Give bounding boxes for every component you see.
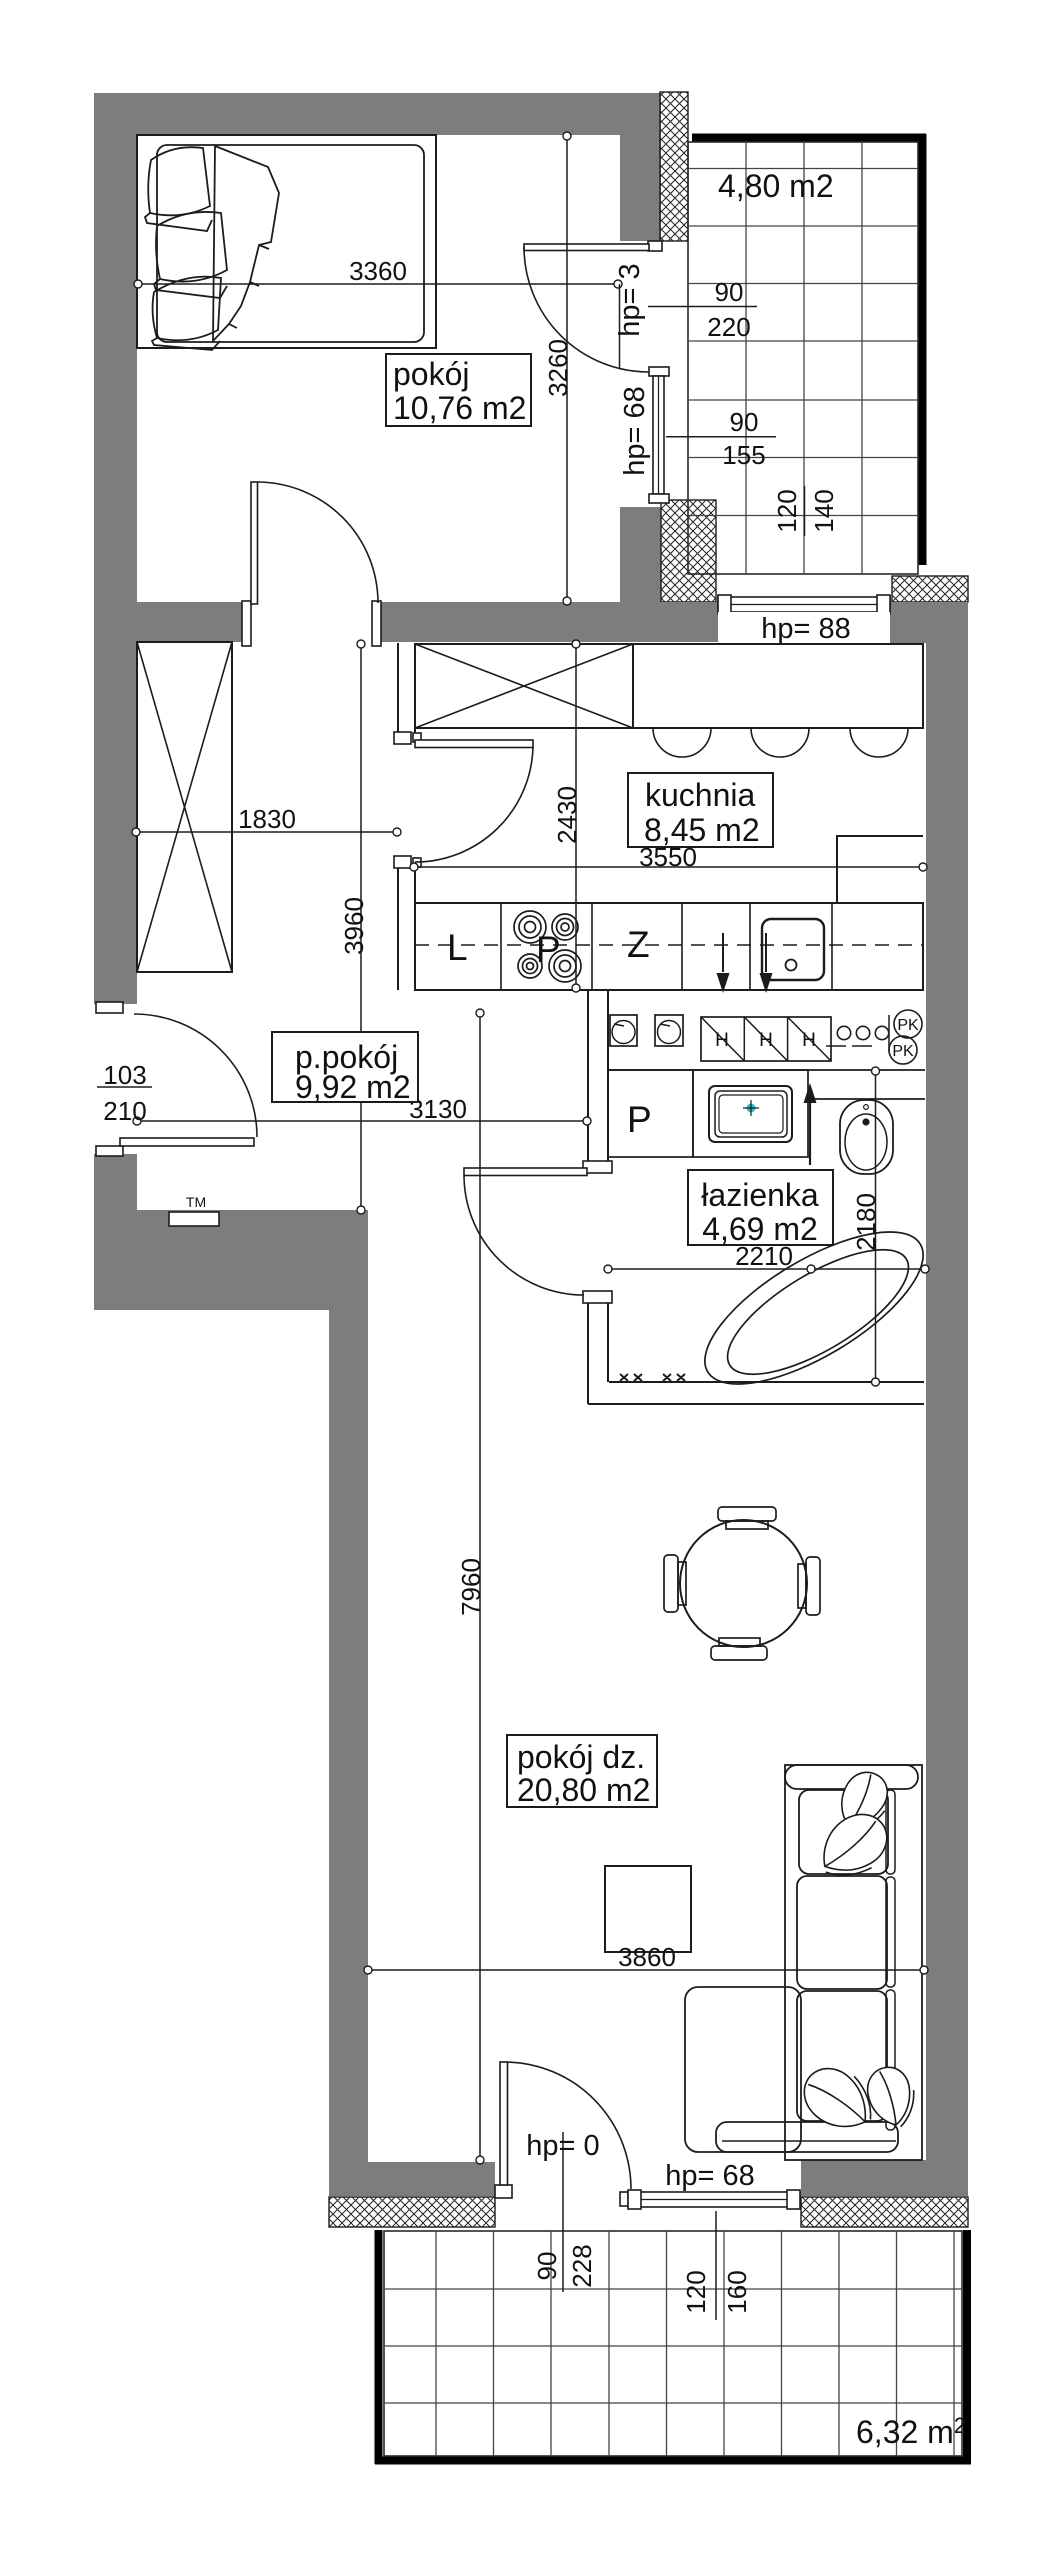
svg-text:20,80 m2: 20,80 m2 [517, 1772, 650, 1808]
svg-text:7960: 7960 [456, 1558, 486, 1616]
svg-text:220: 220 [707, 312, 750, 342]
svg-text:9,92 m2: 9,92 m2 [295, 1069, 411, 1105]
svg-text:210: 210 [103, 1096, 146, 1126]
svg-text:120: 120 [772, 489, 802, 532]
svg-text:228: 228 [567, 2244, 597, 2287]
svg-text:P: P [536, 929, 561, 970]
svg-text:3360: 3360 [349, 256, 407, 286]
svg-text:1830: 1830 [238, 804, 296, 834]
svg-text:pokój dz.: pokój dz. [517, 1739, 645, 1775]
svg-text:H: H [802, 1030, 816, 1051]
svg-text:łazienka: łazienka [701, 1177, 819, 1213]
svg-text:4,69 m2: 4,69 m2 [702, 1211, 818, 1247]
svg-text:3960: 3960 [339, 897, 369, 955]
svg-text:hp= 68: hp= 68 [665, 2160, 755, 2192]
svg-text:4,80 m2: 4,80 m2 [718, 168, 834, 204]
svg-text:90: 90 [730, 407, 759, 437]
svg-text:P: P [627, 1099, 652, 1140]
svg-text:H: H [715, 1030, 729, 1051]
svg-text:120: 120 [681, 2270, 711, 2313]
svg-text:H: H [759, 1030, 773, 1051]
svg-text:90: 90 [532, 2252, 562, 2281]
svg-text:90: 90 [715, 277, 744, 307]
svg-text:10,76 m2: 10,76 m2 [393, 390, 526, 426]
svg-text:8,45 m2: 8,45 m2 [644, 812, 760, 848]
svg-text:hp= 88: hp= 88 [761, 613, 851, 645]
svg-text:155: 155 [722, 440, 765, 470]
svg-text:kuchnia: kuchnia [645, 777, 756, 813]
svg-text:6,32 m2: 6,32 m2 [856, 2413, 966, 2450]
svg-text:3860: 3860 [618, 1942, 676, 1972]
svg-text:160: 160 [722, 2270, 752, 2313]
svg-text:2430: 2430 [552, 786, 582, 844]
svg-text:3260: 3260 [543, 339, 573, 397]
svg-text:L: L [447, 927, 468, 968]
svg-text:TM: TM [186, 1194, 206, 1210]
svg-text:2180: 2180 [851, 1193, 881, 1251]
svg-text:103: 103 [103, 1060, 146, 1090]
svg-text:PK: PK [897, 1017, 919, 1034]
svg-text:hp= 68: hp= 68 [619, 386, 651, 476]
svg-text:140: 140 [809, 489, 839, 532]
svg-text:hp= 3: hp= 3 [614, 263, 646, 336]
svg-text:pokój: pokój [393, 356, 470, 392]
svg-text:PK: PK [892, 1043, 914, 1060]
svg-text:Z: Z [627, 924, 650, 965]
